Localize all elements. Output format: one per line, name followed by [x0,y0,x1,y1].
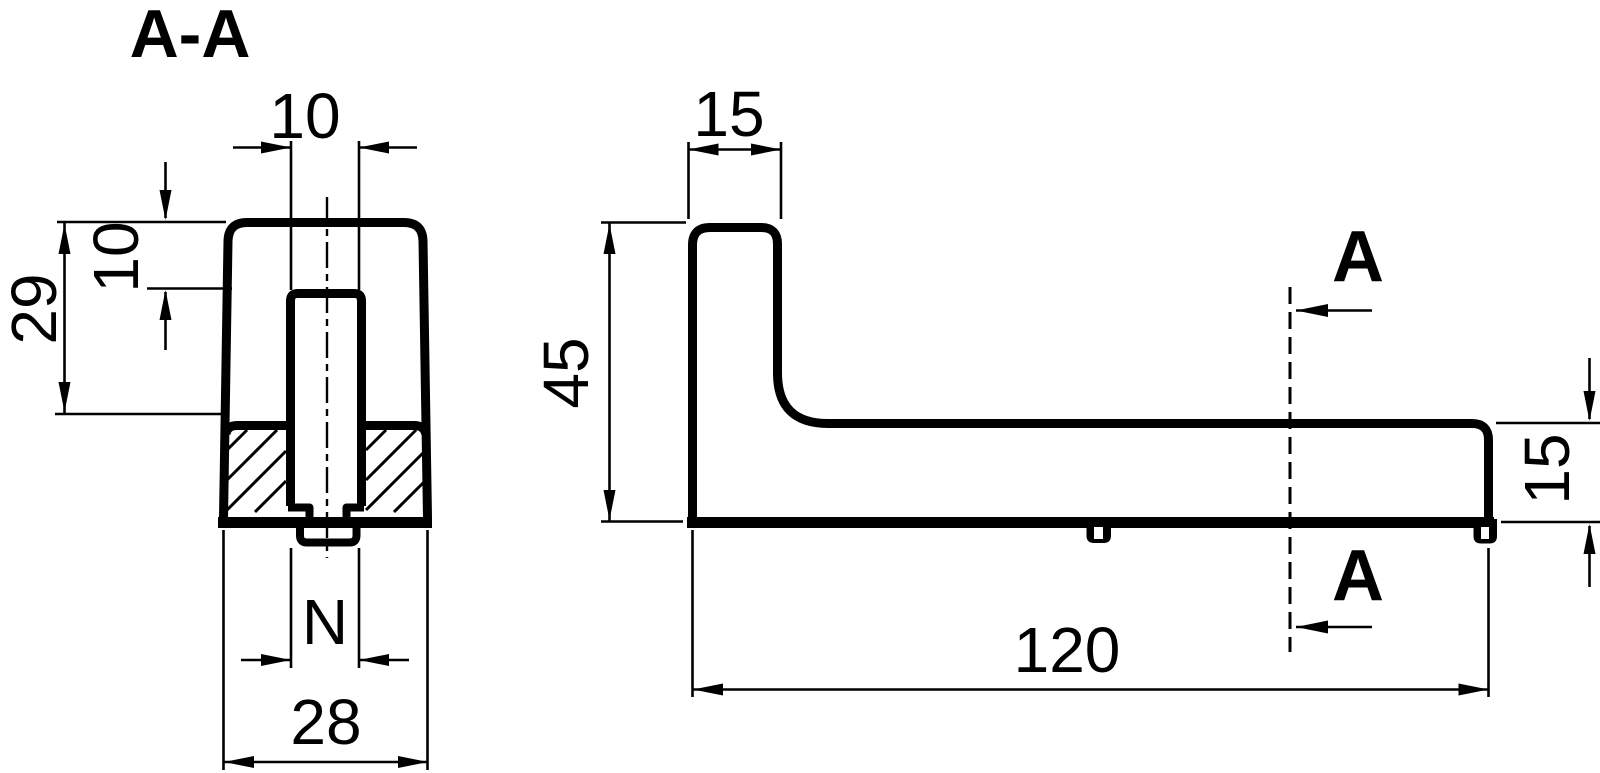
side-view: 15 45 A A 15 [530,78,1600,697]
dim-base-thickness-label: 15 [1511,433,1583,504]
dim-slot-depth: 10 [57,162,232,350]
dim-upright-width-label: 15 [693,78,764,150]
section-view-title: A-A [130,0,251,72]
dim-slot-width-label: 10 [269,80,340,152]
dim-overall-height: 45 [530,223,686,522]
dim-slot-depth-label: 10 [80,221,152,292]
dim-overall-width-label: 28 [290,686,361,758]
insert-top-left [226,426,292,435]
bottom-tab-right [1474,519,1498,544]
dim-thread: N [241,548,409,668]
bottom-tab-middle [1087,519,1112,543]
dim-upright-width: 15 [689,78,782,219]
section-body-outline [224,223,428,519]
dim-overall-length-label: 120 [1014,614,1121,686]
dim-base-thickness: 15 [1496,358,1600,587]
dim-height-to-base-label: 29 [0,273,70,344]
section-arrow-bottom-label: A [1332,536,1384,616]
technical-drawing-canvas: 10 10 29 N [0,0,1600,773]
section-view: 10 10 29 N [0,0,432,770]
section-cut-line: A A [1290,217,1384,652]
section-arrow-top-label: A [1332,217,1384,297]
insert-top-right [360,426,426,435]
hatching-left [227,430,286,512]
dim-thread-label: N [302,586,348,658]
dim-slot-width: 10 [233,80,417,290]
dim-overall-height-label: 45 [530,337,602,408]
hatching-right [366,430,424,512]
